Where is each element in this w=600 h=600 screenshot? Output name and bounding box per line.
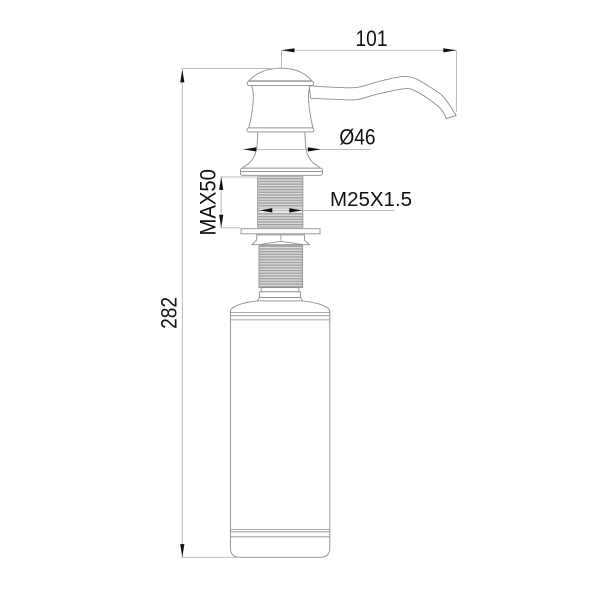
svg-text:282: 282 [157, 297, 182, 329]
svg-text:101: 101 [356, 27, 388, 52]
svg-text:MAX50: MAX50 [195, 169, 220, 235]
svg-text:Ø46: Ø46 [339, 125, 375, 150]
svg-text:M25X1.5: M25X1.5 [330, 188, 412, 211]
